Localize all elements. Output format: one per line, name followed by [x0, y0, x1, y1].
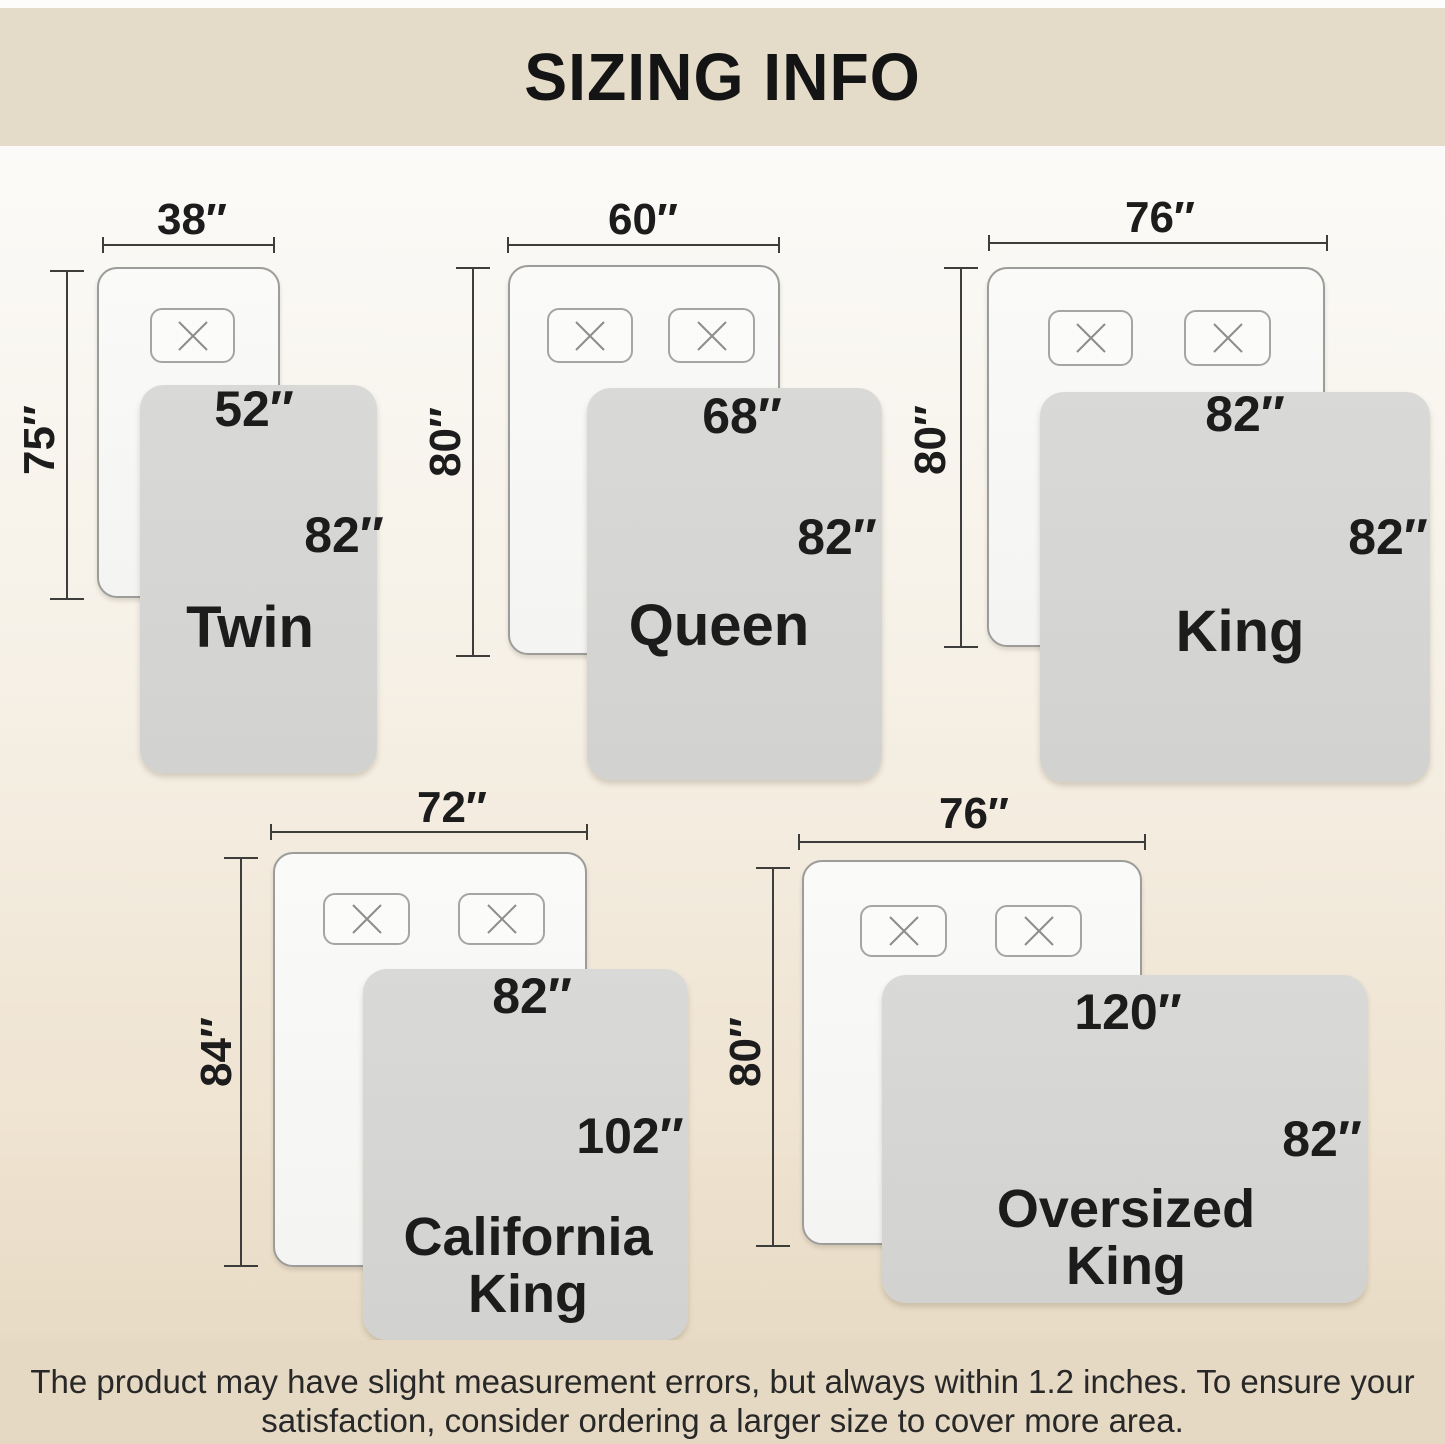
page-title: SIZING INFO [524, 39, 920, 116]
queen-bed-height-label: 80″ [421, 407, 471, 477]
twin-height-dimension-line [66, 270, 68, 600]
queen-blanket [587, 388, 882, 780]
california-king-pillow-right [458, 893, 545, 945]
pillow-x-icon [1065, 317, 1117, 359]
pillow-x-icon [564, 315, 616, 357]
queen-pillow-left [547, 308, 633, 363]
pillow-x-icon [878, 911, 930, 951]
king-pillow-left [1048, 310, 1133, 366]
king-blanket-height-label: 82″ [1348, 508, 1428, 566]
oversized-king-bed-width-label: 76″ [939, 789, 1009, 839]
header-band: SIZING INFO [0, 8, 1445, 146]
pillow-x-icon [476, 899, 528, 939]
pillow-x-icon [341, 899, 393, 939]
king-blanket [1040, 392, 1430, 782]
pillow-x-icon [167, 315, 219, 357]
twin-blanket-width-label: 52″ [214, 380, 294, 438]
california-king-blanket-width-label: 82″ [492, 967, 572, 1025]
king-pillow-right [1184, 310, 1271, 366]
queen-blanket-width-label: 68″ [702, 387, 782, 445]
king-size-name: King [1176, 603, 1305, 661]
twin-blanket [140, 385, 377, 773]
oversized-king-width-dimension-line [798, 841, 1146, 843]
oversized-king-height-dimension-line [772, 867, 774, 1247]
footer-note: The product may have slight measurement … [0, 1362, 1445, 1440]
oversized-king-blanket-width-label: 120″ [1074, 983, 1181, 1041]
queen-height-dimension-line [472, 267, 474, 657]
oversized-king-bed-height-label: 80″ [721, 1017, 771, 1087]
california-king-blanket-height-label: 102″ [576, 1107, 683, 1165]
oversized-king-blanket-height-label: 82″ [1282, 1110, 1362, 1168]
twin-size-name: Twin [186, 599, 314, 657]
pillow-x-icon [1202, 317, 1254, 359]
oversized-king-size-name: Oversized King [997, 1181, 1255, 1295]
twin-blanket-height-label: 82″ [304, 506, 384, 564]
king-bed-height-label: 80″ [906, 405, 956, 475]
queen-blanket-height-label: 82″ [797, 508, 877, 566]
california-king-size-name: California King [403, 1209, 652, 1323]
sizing-info-page: SIZING INFO 38″ 75″ 52″ 82″ Twin 60″ 80″ [0, 0, 1445, 1444]
pillow-x-icon [1013, 911, 1065, 951]
king-height-dimension-line [960, 267, 962, 648]
twin-bed-height-label: 75″ [15, 405, 65, 475]
twin-bed-width-label: 38″ [157, 195, 227, 245]
oversized-king-pillow-left [860, 905, 947, 957]
footer-note-line2: satisfaction, consider ordering a larger… [0, 1401, 1445, 1440]
queen-pillow-right [668, 308, 755, 363]
california-king-pillow-left [323, 893, 410, 945]
pillow-x-icon [686, 315, 738, 357]
queen-bed-width-label: 60″ [608, 195, 678, 245]
california-king-bed-width-label: 72″ [417, 783, 487, 833]
king-blanket-width-label: 82″ [1205, 385, 1285, 443]
california-king-bed-height-label: 84″ [192, 1017, 242, 1087]
twin-pillow [150, 308, 235, 363]
oversized-king-pillow-right [995, 905, 1082, 957]
king-bed-width-label: 76″ [1125, 193, 1195, 243]
queen-size-name: Queen [629, 597, 810, 655]
footer-note-line1: The product may have slight measurement … [0, 1362, 1445, 1401]
